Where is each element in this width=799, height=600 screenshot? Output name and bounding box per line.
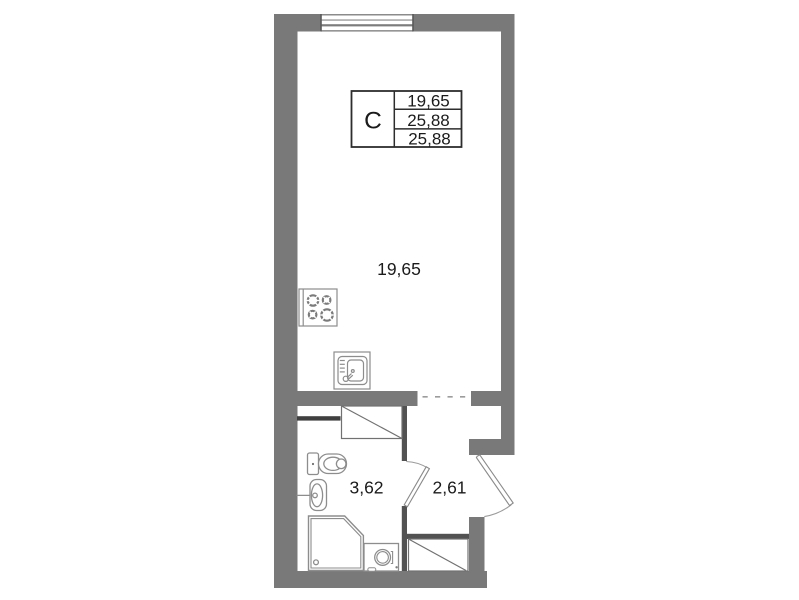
svg-text:25,88: 25,88 [408,130,451,149]
svg-text:25,88: 25,88 [407,111,450,130]
svg-text:3,62: 3,62 [349,478,383,498]
svg-text:19,65: 19,65 [407,92,450,111]
svg-text:C: C [364,108,382,135]
svg-text:2,61: 2,61 [432,478,466,498]
svg-text:19,65: 19,65 [377,259,421,279]
